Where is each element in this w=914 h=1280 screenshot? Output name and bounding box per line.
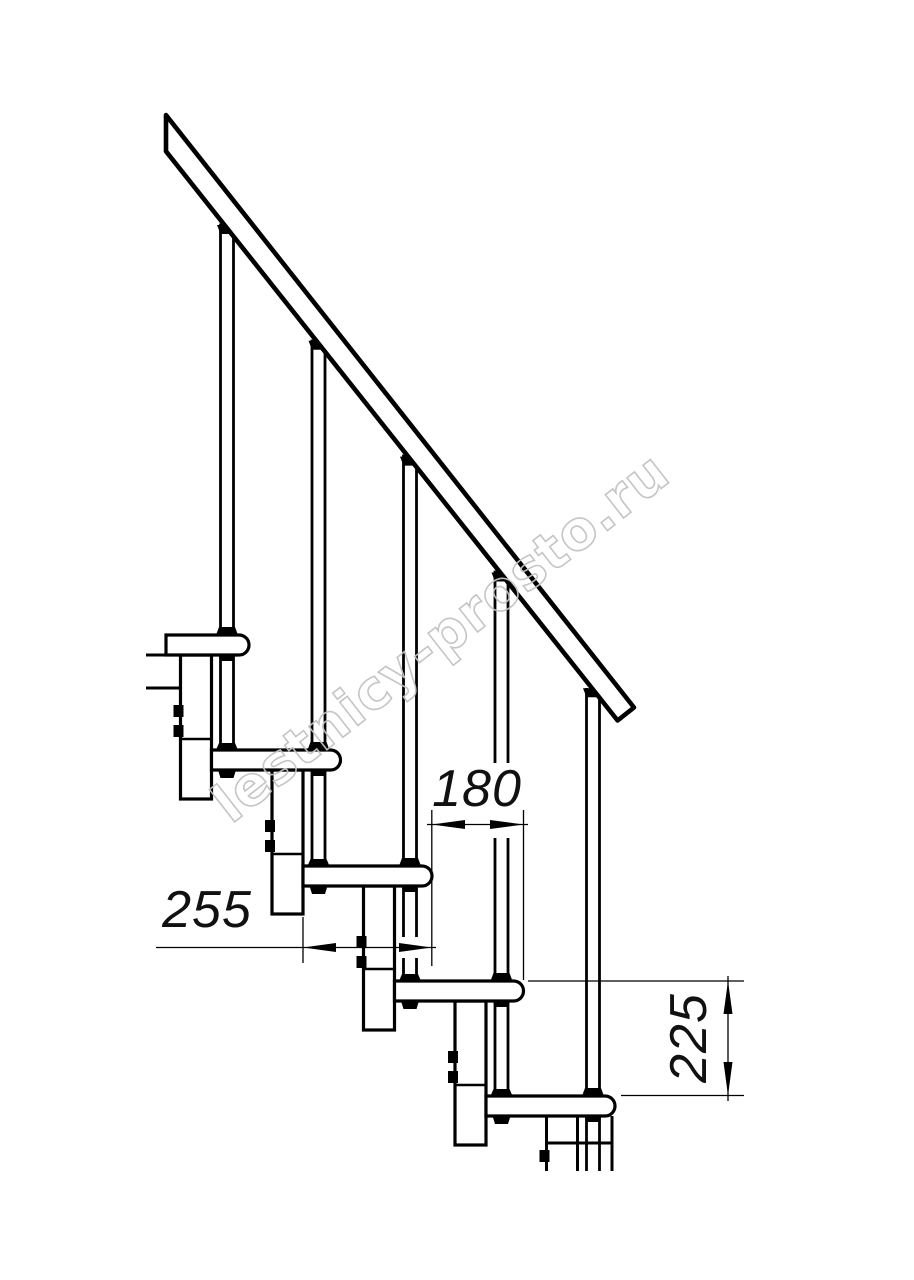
- dimension-180: 180: [427, 760, 528, 980]
- tread-4: [395, 981, 524, 1001]
- cut-stub-lines: [146, 655, 181, 688]
- baluster-rod-3: [404, 456, 417, 999]
- staircase-technical-drawing: 180 255 225 lestnicy-prosto.ru: [0, 0, 914, 1280]
- brackets-column-5: [540, 1150, 550, 1162]
- dimension-255-label: 255: [161, 881, 252, 939]
- tread-1: [166, 635, 249, 655]
- tread-5: [486, 1096, 615, 1116]
- support-column-4: [455, 1001, 486, 1145]
- baluster-rod-4: [495, 572, 508, 1114]
- arrow-down-icon: [724, 1062, 733, 1096]
- baluster-rod-1: [221, 225, 234, 768]
- baluster-rod-2: [312, 341, 325, 884]
- support-column-3: [364, 886, 395, 1030]
- tread-3: [303, 866, 432, 886]
- dimension-225-label: 225: [660, 993, 718, 1084]
- support-column-5: [547, 1116, 613, 1171]
- arrow-left-icon: [303, 943, 336, 952]
- dimension-225: 225: [528, 976, 744, 1101]
- staircase-drawing-page: 180 255 225 lestnicy-prosto.ru: [0, 0, 914, 1280]
- support-column-1: [181, 655, 212, 799]
- arrow-up-icon: [724, 981, 733, 1014]
- dimension-180-label: 180: [432, 760, 522, 818]
